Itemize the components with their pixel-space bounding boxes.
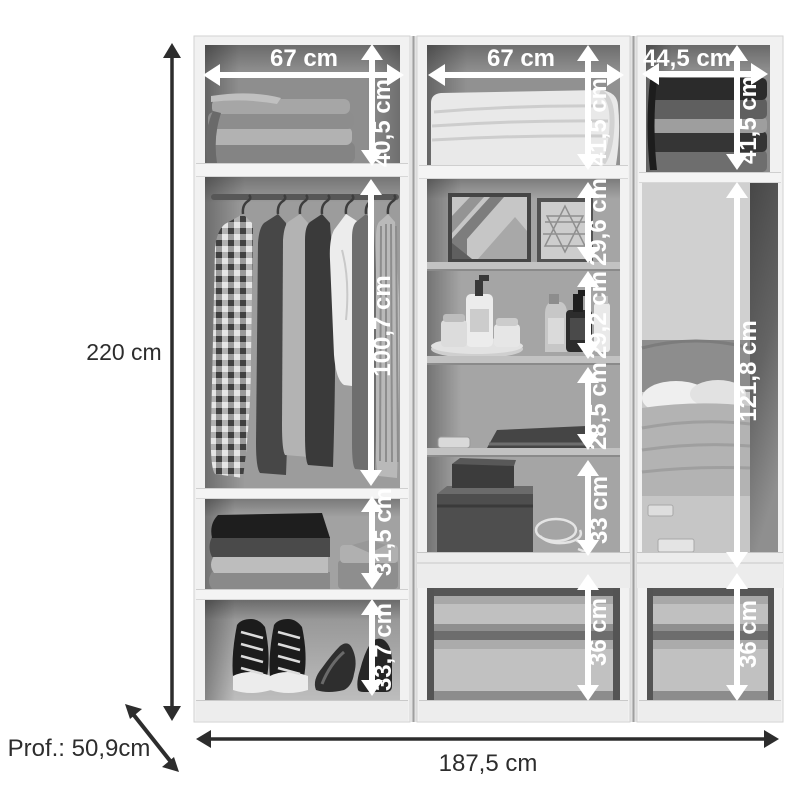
svg-text:67 cm: 67 cm	[487, 45, 555, 72]
svg-text:41,5 cm: 41,5 cm	[585, 78, 612, 166]
svg-text:187,5 cm: 187,5 cm	[439, 750, 538, 777]
svg-text:220 cm: 220 cm	[86, 339, 161, 365]
svg-text:31,5 cm: 31,5 cm	[370, 488, 397, 576]
svg-text:33 cm: 33 cm	[586, 476, 613, 544]
svg-text:40,5 cm: 40,5 cm	[369, 79, 396, 167]
svg-text:67 cm: 67 cm	[270, 45, 338, 72]
svg-text:121,8 cm: 121,8 cm	[735, 320, 762, 421]
svg-text:29,2 cm: 29,2 cm	[585, 271, 612, 359]
svg-text:33,7 cm: 33,7 cm	[370, 603, 397, 691]
svg-text:44,5 cm: 44,5 cm	[643, 45, 731, 72]
svg-text:41,5 cm: 41,5 cm	[735, 76, 762, 164]
svg-text:28,5 cm: 28,5 cm	[585, 362, 612, 450]
svg-text:36 cm: 36 cm	[735, 600, 762, 668]
svg-text:36 cm: 36 cm	[585, 598, 612, 666]
svg-text:Prof.: 50,9cm: Prof.: 50,9cm	[8, 735, 151, 762]
svg-text:29,6 cm: 29,6 cm	[585, 178, 612, 266]
svg-text:100,7 cm: 100,7 cm	[369, 275, 396, 376]
